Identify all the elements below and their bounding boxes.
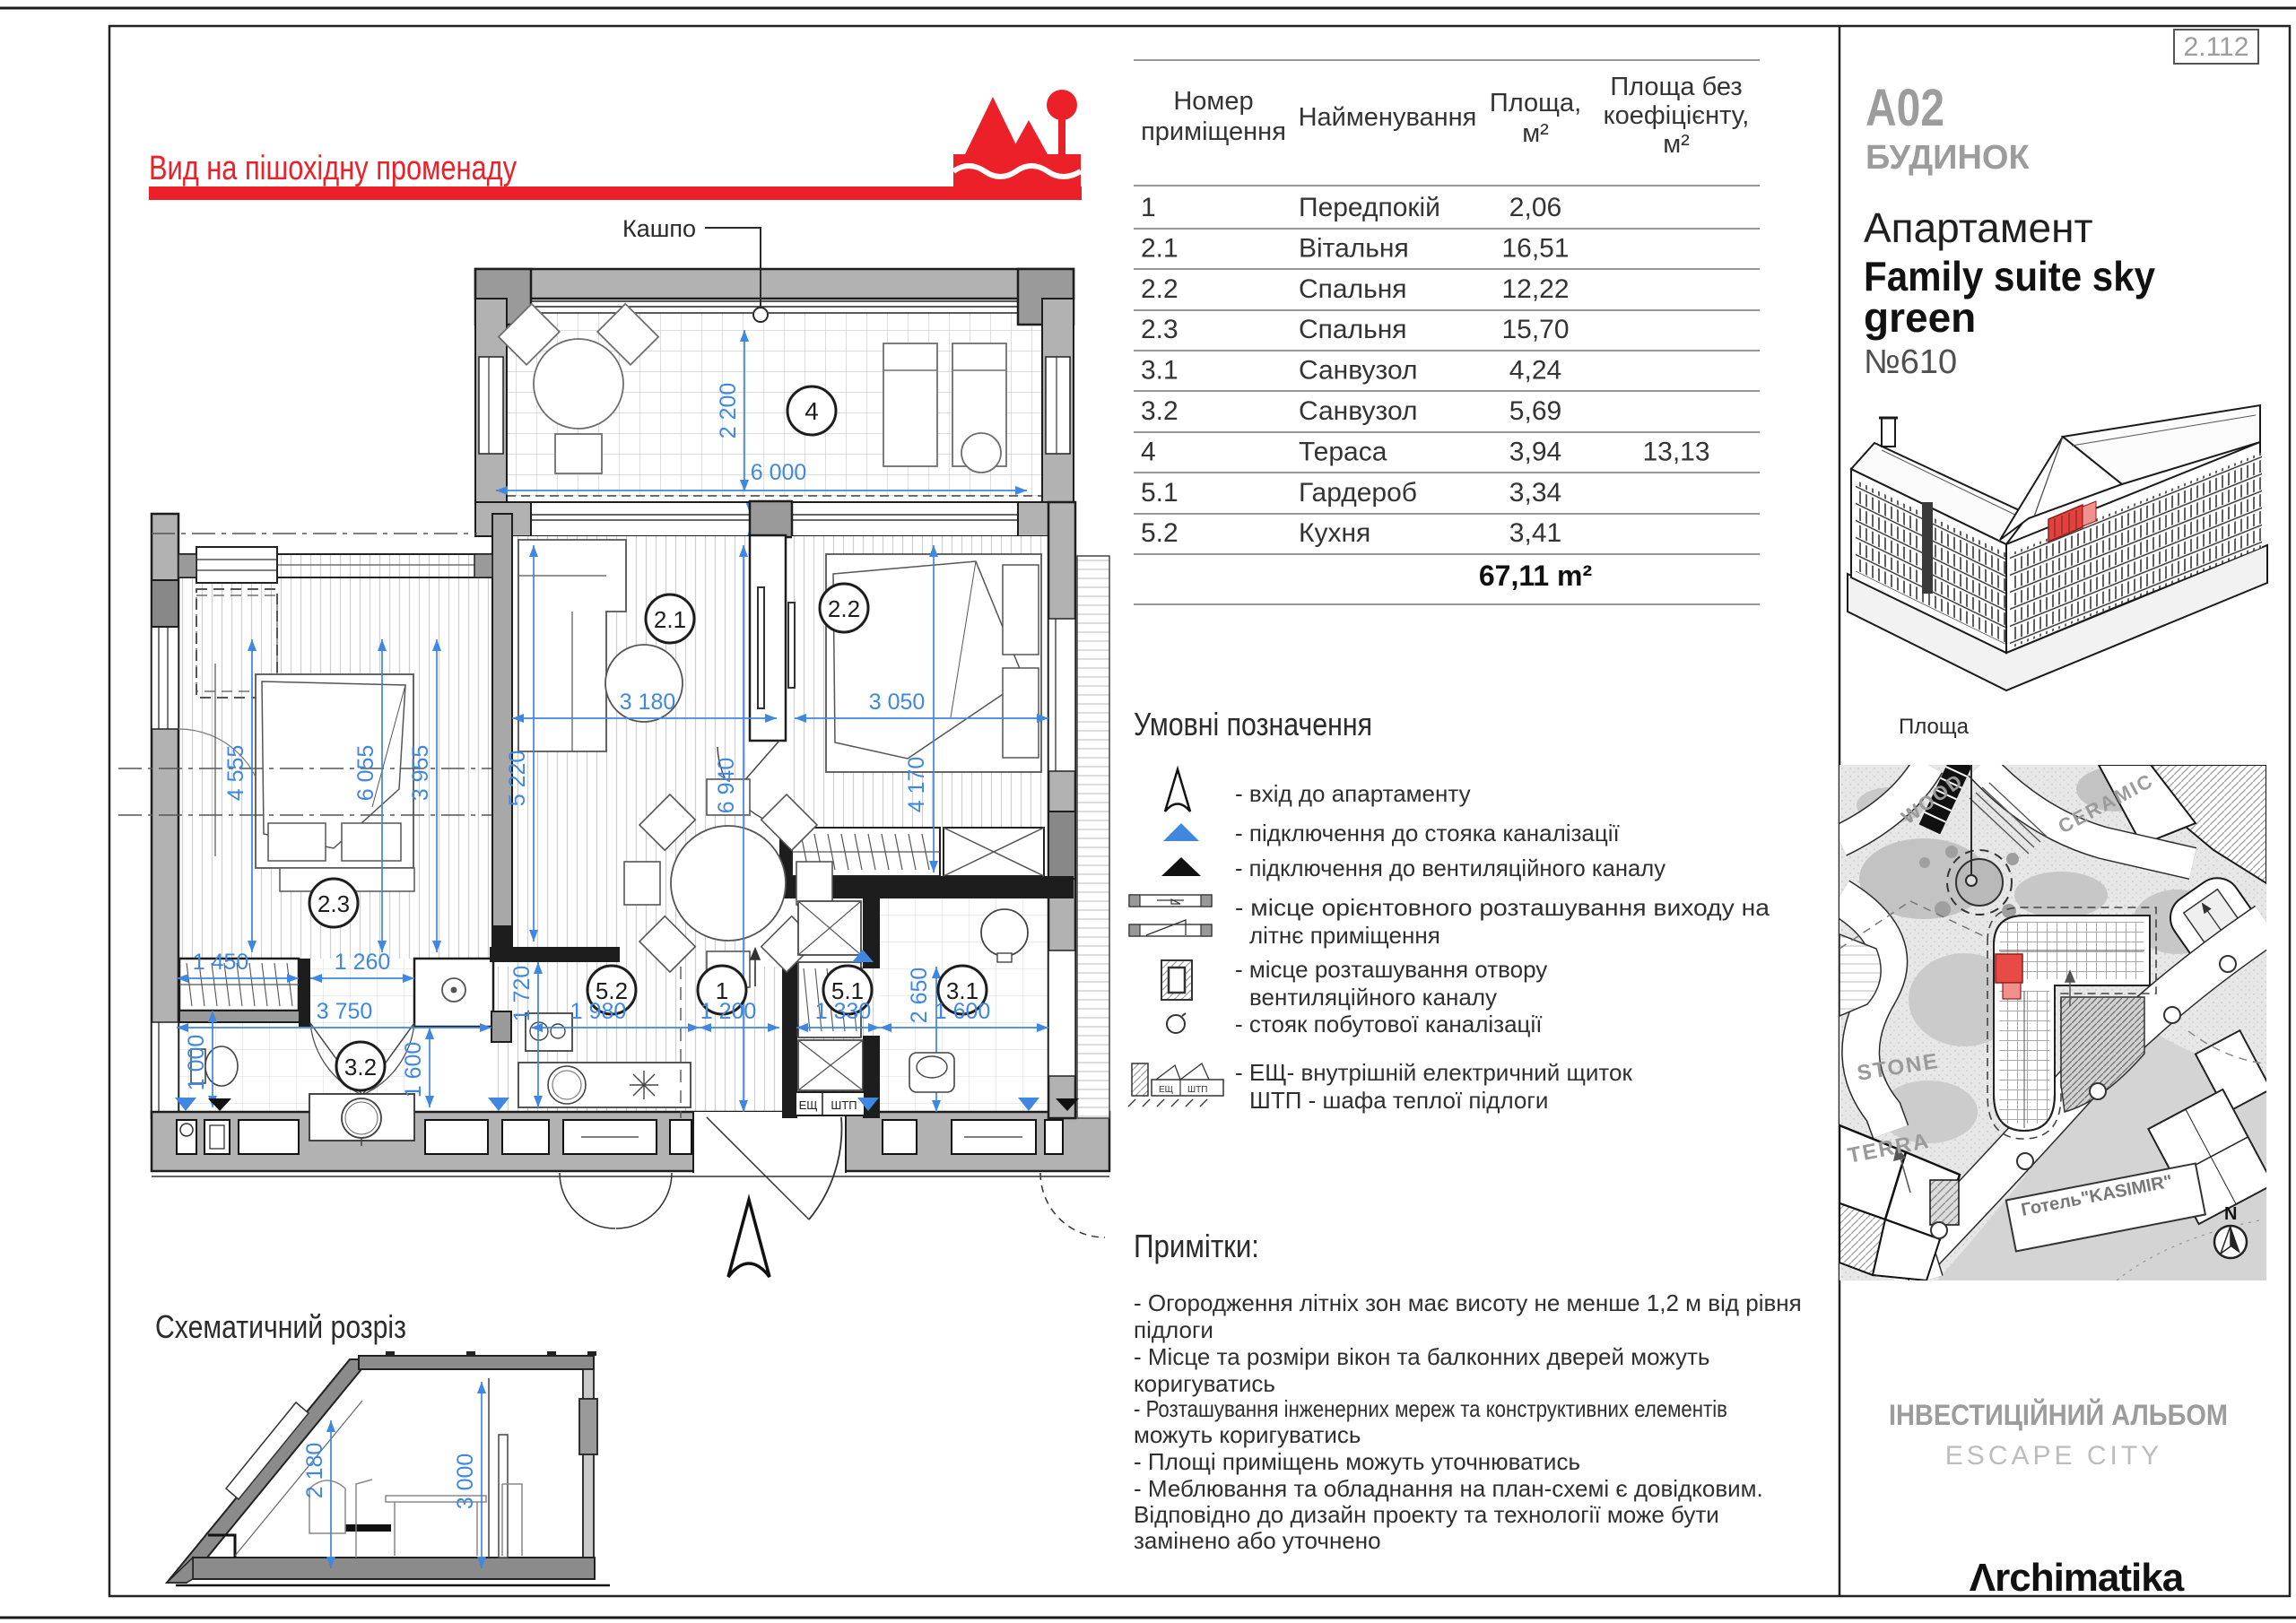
svg-text:2.2: 2.2 bbox=[1141, 274, 1178, 304]
svg-text:Умовні позначення: Умовні позначення bbox=[1134, 706, 1372, 742]
svg-text:- місце орієнтовного розташува: - місце орієнтовного розташування виходу… bbox=[1235, 894, 1770, 921]
svg-text:Спальня: Спальня bbox=[1299, 274, 1407, 304]
svg-text:16,51: 16,51 bbox=[1501, 233, 1569, 263]
svg-text:Примітки:: Примітки: bbox=[1134, 1228, 1259, 1264]
svg-text:літнє приміщення: літнє приміщення bbox=[1249, 922, 1440, 949]
svg-text:4 170: 4 170 bbox=[904, 757, 929, 813]
svg-text:м²: м² bbox=[1522, 119, 1549, 148]
svg-text:ШТП: ШТП bbox=[831, 1098, 857, 1112]
svg-text:1: 1 bbox=[1141, 193, 1156, 222]
svg-text:2 650: 2 650 bbox=[907, 968, 932, 1024]
svg-text:Апартамент: Апартамент bbox=[1864, 204, 2093, 251]
svg-text:3 180: 3 180 bbox=[620, 690, 676, 715]
svg-text:Family suite sky: Family suite sky bbox=[1864, 253, 2155, 299]
svg-text:- Площі приміщень можуть уточ: - Площі приміщень можуть уточнюватись bbox=[1134, 1448, 1580, 1475]
svg-text:БУДИНОК: БУДИНОК bbox=[1865, 139, 2030, 177]
svg-text:Відповідно до дизайн проекту т: Відповідно до дизайн проекту та технолог… bbox=[1134, 1501, 1719, 1528]
svg-text:Санвузол: Санвузол bbox=[1299, 356, 1417, 386]
svg-text:ЕЩ: ЕЩ bbox=[1159, 1085, 1173, 1095]
svg-text:Схематичний розріз: Схематичний розріз bbox=[155, 1308, 406, 1345]
svg-text:3,34: 3,34 bbox=[1509, 478, 1561, 508]
svg-text:67,11 m²: 67,11 m² bbox=[1479, 560, 1592, 592]
svg-text:- ЕЩ- внутрішній електричний щ: - ЕЩ- внутрішній електричний щиток bbox=[1235, 1059, 1632, 1086]
svg-text:- місце розташування отвору: - місце розташування отвору bbox=[1235, 956, 1547, 983]
svg-text:4: 4 bbox=[1141, 437, 1156, 466]
svg-text:вентиляційного каналу: вентиляційного каналу bbox=[1249, 984, 1497, 1011]
svg-text:можуть коригуватись: можуть коригуватись bbox=[1134, 1421, 1361, 1448]
svg-text:коригуватись: коригуватись bbox=[1134, 1370, 1275, 1397]
svg-text:4 555: 4 555 bbox=[223, 745, 248, 802]
svg-text:2.1: 2.1 bbox=[1141, 233, 1178, 263]
svg-text:Санвузол: Санвузол bbox=[1299, 396, 1417, 426]
svg-text:підлоги: підлоги bbox=[1134, 1316, 1213, 1343]
svg-text:Площа без: Площа без bbox=[1610, 73, 1742, 101]
svg-text:м²: м² bbox=[1663, 130, 1690, 159]
svg-text:3,94: 3,94 bbox=[1509, 437, 1561, 466]
svg-text:ІНВЕСТИЦІЙНИЙ АЛЬБОМ: ІНВЕСТИЦІЙНИЙ АЛЬБОМ bbox=[1889, 1399, 2228, 1431]
svg-text:1 600: 1 600 bbox=[935, 999, 991, 1024]
svg-text:Гардероб: Гардероб bbox=[1299, 478, 1417, 508]
svg-text:5.1: 5.1 bbox=[1141, 478, 1178, 508]
svg-text:2.112: 2.112 bbox=[2184, 32, 2249, 62]
svg-text:2 180: 2 180 bbox=[302, 1443, 327, 1499]
svg-text:- Огородження літніх зон має в: - Огородження літніх зон має висоту не м… bbox=[1134, 1289, 1802, 1316]
svg-text:Номер: Номер bbox=[1173, 87, 1253, 116]
svg-text:4: 4 bbox=[804, 397, 819, 425]
svg-text:Спальня: Спальня bbox=[1299, 315, 1407, 344]
svg-text:Кашпо: Кашпо bbox=[622, 215, 696, 242]
svg-text:N: N bbox=[2224, 1204, 2237, 1224]
svg-text:- підключення до вентиляційног: - підключення до вентиляційного каналу bbox=[1235, 855, 1665, 881]
svg-text:3 955: 3 955 bbox=[408, 745, 433, 802]
svg-text:5.2: 5.2 bbox=[1141, 518, 1178, 548]
svg-text:1 450: 1 450 bbox=[193, 950, 249, 975]
svg-text:приміщення: приміщення bbox=[1141, 117, 1286, 146]
svg-text:13,13: 13,13 bbox=[1642, 437, 1709, 466]
svg-text:ЕЩ: ЕЩ bbox=[799, 1098, 818, 1112]
svg-text:- стояк побутової каналізації: - стояк побутової каналізації bbox=[1235, 1011, 1542, 1037]
svg-text:1 980: 1 980 bbox=[570, 999, 627, 1024]
svg-text:Передпокій: Передпокій bbox=[1299, 193, 1440, 222]
svg-text:1 330: 1 330 bbox=[815, 999, 872, 1024]
svg-text:3.2: 3.2 bbox=[344, 1054, 377, 1081]
svg-text:6 000: 6 000 bbox=[751, 460, 807, 485]
svg-text:Найменування: Найменування bbox=[1299, 103, 1477, 132]
svg-text:Λrchimatika: Λrchimatika bbox=[1970, 1556, 2185, 1600]
svg-text:1 720: 1 720 bbox=[509, 966, 535, 1022]
svg-text:Площа,: Площа, bbox=[1490, 89, 1581, 117]
svg-text:15,70: 15,70 bbox=[1501, 315, 1569, 344]
svg-text:6 055: 6 055 bbox=[353, 745, 378, 802]
svg-text:2.3: 2.3 bbox=[1141, 315, 1178, 344]
svg-text:Вітальня: Вітальня bbox=[1299, 233, 1409, 263]
svg-text:3.1: 3.1 bbox=[1141, 356, 1178, 386]
svg-text:3 000: 3 000 bbox=[453, 1454, 478, 1510]
svg-text:green: green bbox=[1864, 294, 1976, 341]
svg-text:№610: №610 bbox=[1864, 343, 1957, 381]
svg-text:Кухня: Кухня bbox=[1299, 518, 1370, 548]
svg-text:Тераса: Тераса bbox=[1299, 437, 1387, 466]
svg-text:3 750: 3 750 bbox=[317, 999, 373, 1024]
svg-text:коефіцієнту,: коефіцієнту, bbox=[1604, 101, 1750, 130]
svg-text:2 200: 2 200 bbox=[716, 383, 741, 439]
svg-text:- Місце та розміри вікон та б: - Місце та розміри вікон та балконних дв… bbox=[1134, 1343, 1709, 1370]
svg-text:1 000: 1 000 bbox=[184, 1035, 209, 1091]
svg-text:- Меблювання та обладнання на: - Меблювання та обладнання на план-схемі… bbox=[1134, 1475, 1763, 1502]
svg-text:5,69: 5,69 bbox=[1509, 396, 1561, 426]
svg-text:2.1: 2.1 bbox=[654, 606, 686, 633]
svg-text:1 200: 1 200 bbox=[700, 999, 757, 1024]
svg-text:ШТП - шафа теплої підлоги: ШТП - шафа теплої підлоги bbox=[1249, 1087, 1548, 1114]
svg-text:ШТП: ШТП bbox=[1187, 1085, 1207, 1095]
svg-text:- Розташування інженерних мере: - Розташування інженерних мереж та конст… bbox=[1134, 1395, 1727, 1422]
svg-text:Площа: Площа bbox=[1899, 715, 1970, 739]
svg-text:Вид на пішохідну променаду: Вид на пішохідну променаду bbox=[149, 150, 517, 187]
svg-text:A02: A02 bbox=[1865, 79, 1944, 137]
svg-text:1 600: 1 600 bbox=[401, 1042, 426, 1098]
svg-text:- вхід до апартаменту: - вхід до апартаменту bbox=[1235, 780, 1471, 807]
svg-text:ESCAPE CITY: ESCAPE CITY bbox=[1945, 1441, 2162, 1471]
svg-text:- підключення до стояка каналі: - підключення до стояка каналізації bbox=[1235, 820, 1620, 846]
svg-text:4,24: 4,24 bbox=[1509, 356, 1561, 386]
svg-text:5 220: 5 220 bbox=[505, 751, 530, 807]
svg-text:замінено або уточнено: замінено або уточнено bbox=[1134, 1527, 1381, 1554]
svg-text:3 050: 3 050 bbox=[869, 690, 926, 715]
svg-text:3,41: 3,41 bbox=[1509, 518, 1561, 548]
svg-text:2,06: 2,06 bbox=[1509, 193, 1561, 222]
svg-text:2.2: 2.2 bbox=[828, 595, 860, 622]
svg-text:1 260: 1 260 bbox=[335, 950, 391, 975]
svg-text:2.3: 2.3 bbox=[317, 890, 350, 917]
svg-text:6 940: 6 940 bbox=[714, 758, 739, 814]
svg-text:12,22: 12,22 bbox=[1501, 274, 1569, 304]
svg-text:3.2: 3.2 bbox=[1141, 396, 1178, 426]
